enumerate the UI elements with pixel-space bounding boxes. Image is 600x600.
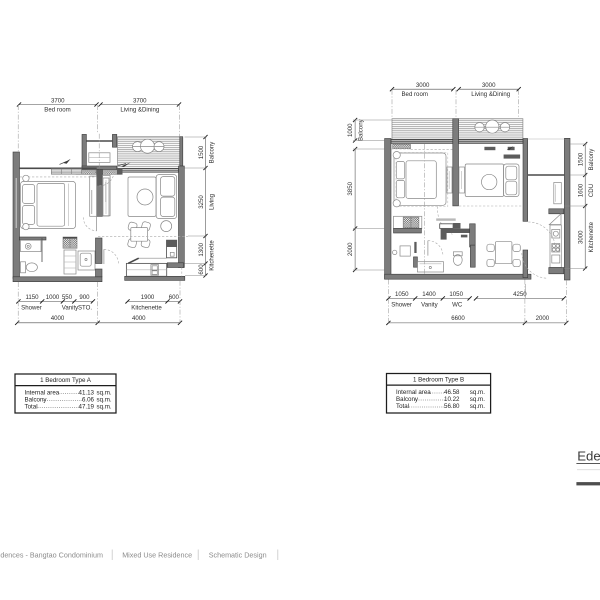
svg-text:1000: 1000 <box>46 294 60 301</box>
svg-text:3850: 3850 <box>347 181 354 195</box>
svg-text:1500: 1500 <box>577 152 584 166</box>
svg-text:Living &Dining: Living &Dining <box>471 91 510 98</box>
svg-text:Eden: Eden <box>577 449 600 464</box>
svg-text:Balcony: Balcony <box>396 396 419 403</box>
svg-text:1900: 1900 <box>141 294 155 301</box>
svg-text:600: 600 <box>169 294 180 301</box>
svg-text:3700: 3700 <box>51 97 65 104</box>
svg-text:3700: 3700 <box>133 97 147 104</box>
svg-text:10.22: 10.22 <box>444 396 460 403</box>
svg-text:600: 600 <box>198 264 205 275</box>
svg-text:Living: Living <box>209 194 216 210</box>
svg-text:1600: 1600 <box>577 183 584 197</box>
svg-text:Kitchenette: Kitchenette <box>588 221 595 252</box>
svg-text:4000: 4000 <box>51 315 65 322</box>
svg-text:Balcony: Balcony <box>209 141 216 164</box>
svg-text:Bed room: Bed room <box>401 91 427 98</box>
svg-text:STO.: STO. <box>78 304 92 311</box>
svg-text:2000: 2000 <box>347 242 354 256</box>
svg-text:Shower: Shower <box>21 304 42 311</box>
svg-text:Balcony: Balcony <box>25 396 48 403</box>
svg-text:Internal area: Internal area <box>396 389 431 396</box>
svg-text:sq.m.: sq.m. <box>97 389 112 396</box>
svg-text:900: 900 <box>79 294 90 301</box>
svg-text:3000: 3000 <box>577 230 584 244</box>
svg-text:1150: 1150 <box>25 294 39 301</box>
svg-text:46.58: 46.58 <box>444 389 460 396</box>
svg-text:Schematic Design: Schematic Design <box>209 551 267 560</box>
svg-text:Shower: Shower <box>391 301 412 308</box>
svg-text:Bed room: Bed room <box>44 106 70 113</box>
svg-text:4000: 4000 <box>132 315 146 322</box>
svg-text:3250: 3250 <box>198 195 205 209</box>
svg-text:2000: 2000 <box>536 315 550 322</box>
svg-text:Internal area: Internal area <box>25 389 60 396</box>
svg-text:Balcony: Balcony <box>588 148 595 171</box>
svg-text:3000: 3000 <box>482 82 496 89</box>
svg-text:sq.m.: sq.m. <box>97 396 112 403</box>
svg-text:WC: WC <box>452 301 463 308</box>
svg-text:3000: 3000 <box>416 82 430 89</box>
svg-text:47.19: 47.19 <box>79 403 95 410</box>
svg-text:1300: 1300 <box>198 242 205 256</box>
svg-text:Kitchenette: Kitchenette <box>209 240 216 271</box>
svg-text:56.80: 56.80 <box>444 403 460 410</box>
svg-text:sq.m.: sq.m. <box>470 403 485 410</box>
svg-text:Mixed Use Residence: Mixed Use Residence <box>122 551 192 560</box>
svg-text:Kitchenette: Kitchenette <box>131 304 162 311</box>
svg-text:1000: 1000 <box>347 123 354 137</box>
svg-text:Living &Dining: Living &Dining <box>120 106 159 113</box>
svg-text:6600: 6600 <box>451 315 465 322</box>
svg-text:Vanity: Vanity <box>62 304 79 311</box>
svg-text:1050: 1050 <box>395 291 409 298</box>
svg-text:1050: 1050 <box>449 291 463 298</box>
svg-text:550: 550 <box>62 294 73 301</box>
svg-text:sq.m.: sq.m. <box>470 389 485 396</box>
svg-text:1500: 1500 <box>198 145 205 159</box>
svg-text:sq.m.: sq.m. <box>470 396 485 403</box>
svg-text:1 Bedroom Type B: 1 Bedroom Type B <box>413 377 464 384</box>
svg-text:Residences - Bangtao Condomini: Residences - Bangtao Condominium <box>0 551 103 560</box>
svg-text:1400: 1400 <box>422 291 436 298</box>
svg-text:Vanity: Vanity <box>421 301 438 308</box>
svg-text:CDU: CDU <box>588 184 595 197</box>
svg-text:Balcony: Balcony <box>358 118 365 141</box>
svg-text:Total: Total <box>25 403 38 410</box>
svg-text:6.06: 6.06 <box>82 396 95 403</box>
svg-text:sq.m.: sq.m. <box>97 403 112 410</box>
svg-text:Total: Total <box>396 403 409 410</box>
svg-text:41.13: 41.13 <box>79 389 95 396</box>
svg-text:1 Bedroom Type A: 1 Bedroom Type A <box>40 377 92 384</box>
